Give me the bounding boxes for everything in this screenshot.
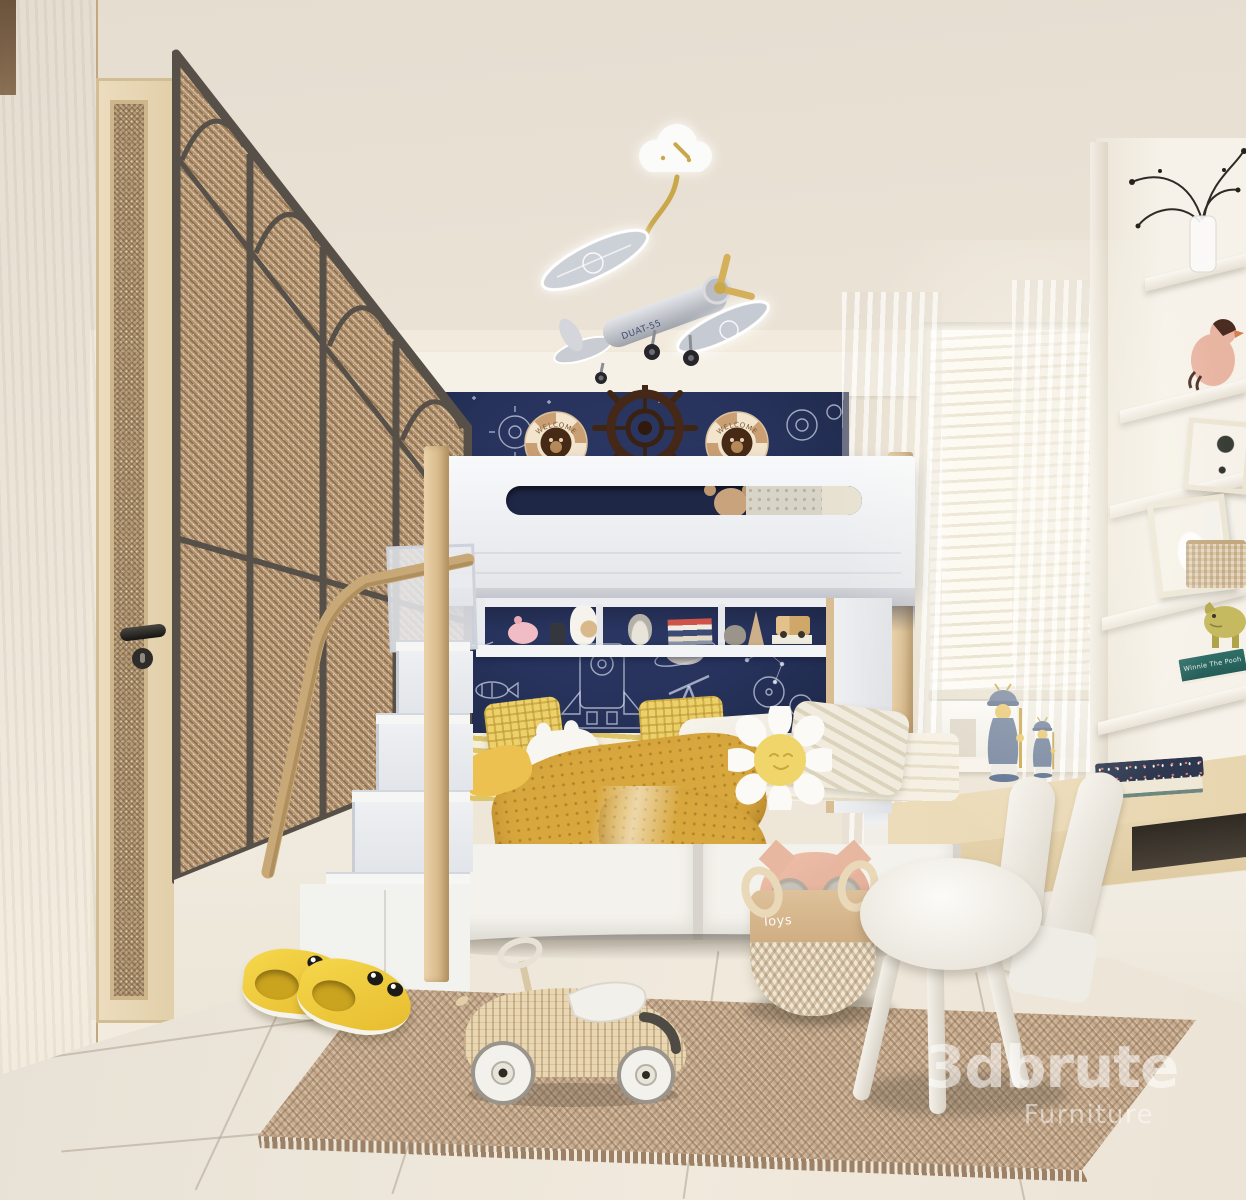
basket-weave xyxy=(750,942,876,1016)
groove-line xyxy=(451,552,900,554)
shelf-top xyxy=(476,598,872,607)
kids-bedroom-scene: WELCOME WELCOME xyxy=(0,0,1246,1200)
tile-seam xyxy=(195,995,288,1191)
shelf-fascia xyxy=(476,645,872,657)
fish-doodle xyxy=(476,682,518,698)
framed-art-balloon xyxy=(1183,417,1246,494)
piggy-bank xyxy=(508,622,538,644)
car-wheel-left xyxy=(473,1043,533,1103)
groove-line xyxy=(451,572,900,574)
airplane: DUAT-55 xyxy=(535,219,774,384)
truck-wheel xyxy=(780,631,787,638)
guard-small xyxy=(1032,717,1055,778)
owl-figure xyxy=(724,625,746,645)
shelf-divider xyxy=(718,604,725,651)
tree-figure xyxy=(748,611,764,645)
guardrail-slot xyxy=(506,486,862,515)
mug xyxy=(550,623,565,645)
book-title: Winnie The Pooh xyxy=(1183,655,1242,673)
bird-figurine xyxy=(1185,310,1246,392)
rhino-figurine xyxy=(1202,588,1246,650)
shelf-divider xyxy=(596,604,603,651)
door-glass-pane xyxy=(110,100,148,1000)
watermark-tagline: Furniture xyxy=(925,1100,1160,1130)
guard-figurines xyxy=(975,682,1067,790)
bunny-chair-seat[interactable] xyxy=(860,858,1042,970)
airplane-ceiling-lamp: DUAT-55 xyxy=(505,105,795,405)
keyhole xyxy=(140,653,145,663)
penguin-figure xyxy=(570,605,597,645)
guard-large xyxy=(987,684,1024,782)
lamp-rod xyxy=(645,177,677,237)
flat-book xyxy=(772,635,812,644)
woven-box xyxy=(1186,540,1246,588)
piggy-ear xyxy=(514,616,522,624)
cloud-canopy xyxy=(639,124,712,172)
door-lock[interactable] xyxy=(132,648,153,669)
cream-pillow xyxy=(822,486,862,515)
bed-post-left xyxy=(424,446,449,982)
polka-pillow xyxy=(746,486,822,515)
branch-vase xyxy=(1120,140,1246,280)
shelving-side-panel xyxy=(1090,142,1108,798)
bed-side-rail xyxy=(437,786,961,846)
truck-wheel xyxy=(798,631,805,638)
teddy-ear xyxy=(704,486,716,496)
totoro-figure xyxy=(628,614,652,645)
watermark: 3dbrute Furniture xyxy=(925,1038,1160,1130)
wall-shelf xyxy=(476,598,872,657)
book-stack xyxy=(668,618,713,646)
ride-on-toy-car[interactable] xyxy=(448,935,698,1110)
upper-bunk xyxy=(437,456,915,590)
propeller-hub xyxy=(714,282,726,294)
car-wheel-right xyxy=(619,1048,673,1102)
wardrobe-panel xyxy=(0,0,98,1075)
watermark-brand: 3dbrute xyxy=(925,1038,1160,1096)
